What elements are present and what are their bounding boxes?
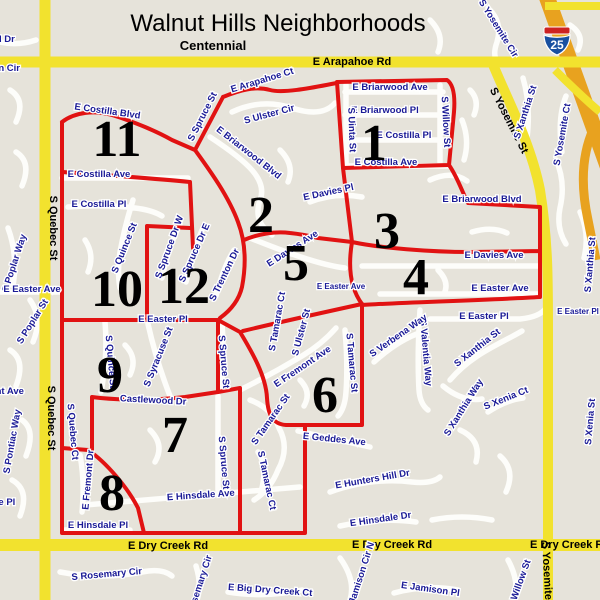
major-road-label: S Quebec St [47,196,59,261]
region-number-11: 11 [92,111,141,168]
street-label: cton Cir [0,63,20,74]
interstate-shield-number: 25 [550,38,564,52]
street-label: E Easter Ave [317,282,366,291]
major-road-label: E Arapahoe Rd [313,56,391,68]
street-label: E Costilla Pl [72,199,127,210]
region-number-4: 4 [403,249,429,306]
region-number-1: 1 [361,115,387,172]
shield-red-band [544,27,570,34]
region-number-12: 12 [158,258,210,315]
region-number-2: 2 [248,187,274,244]
region-number-6: 6 [312,367,338,424]
street-label: E Easter Ave [3,284,60,295]
major-road-label: E Dry Creek Rd [128,540,208,552]
street-label: amont Ave [0,386,24,397]
walnut-hills-map: Walnut Hills NeighborhoodsCentennialE Ar… [0,0,600,600]
street-label: ld Dr [0,34,15,45]
map-subtitle: Centennial [180,38,246,53]
region-number-8: 8 [99,465,125,522]
major-road-label: S Quebec St [45,386,57,451]
street-label: S Uinta St [345,107,358,153]
map-screenshot: Walnut Hills NeighborhoodsCentennialE Ar… [0,0,600,600]
region-number-10: 10 [91,261,143,318]
region-number-9: 9 [97,347,123,404]
street-label: E Costilla Ave [68,169,131,180]
region-number-3: 3 [374,203,400,260]
street-label: E Briarwood Ave [352,82,427,93]
map-title: Walnut Hills Neighborhoods [130,10,425,37]
street-label: E Easter Pl [459,311,509,322]
street-label: dale Pl [0,497,15,508]
street-label: E Easter Ave [471,283,528,294]
street-label: E Davies Ave [465,250,524,261]
region-number-7: 7 [162,407,188,464]
street-label: E Easter Pl [557,307,599,316]
street-label: E Briarwood Blvd [442,194,521,205]
street-label: E Easter Pl [138,314,188,325]
region-number-5: 5 [283,235,309,292]
